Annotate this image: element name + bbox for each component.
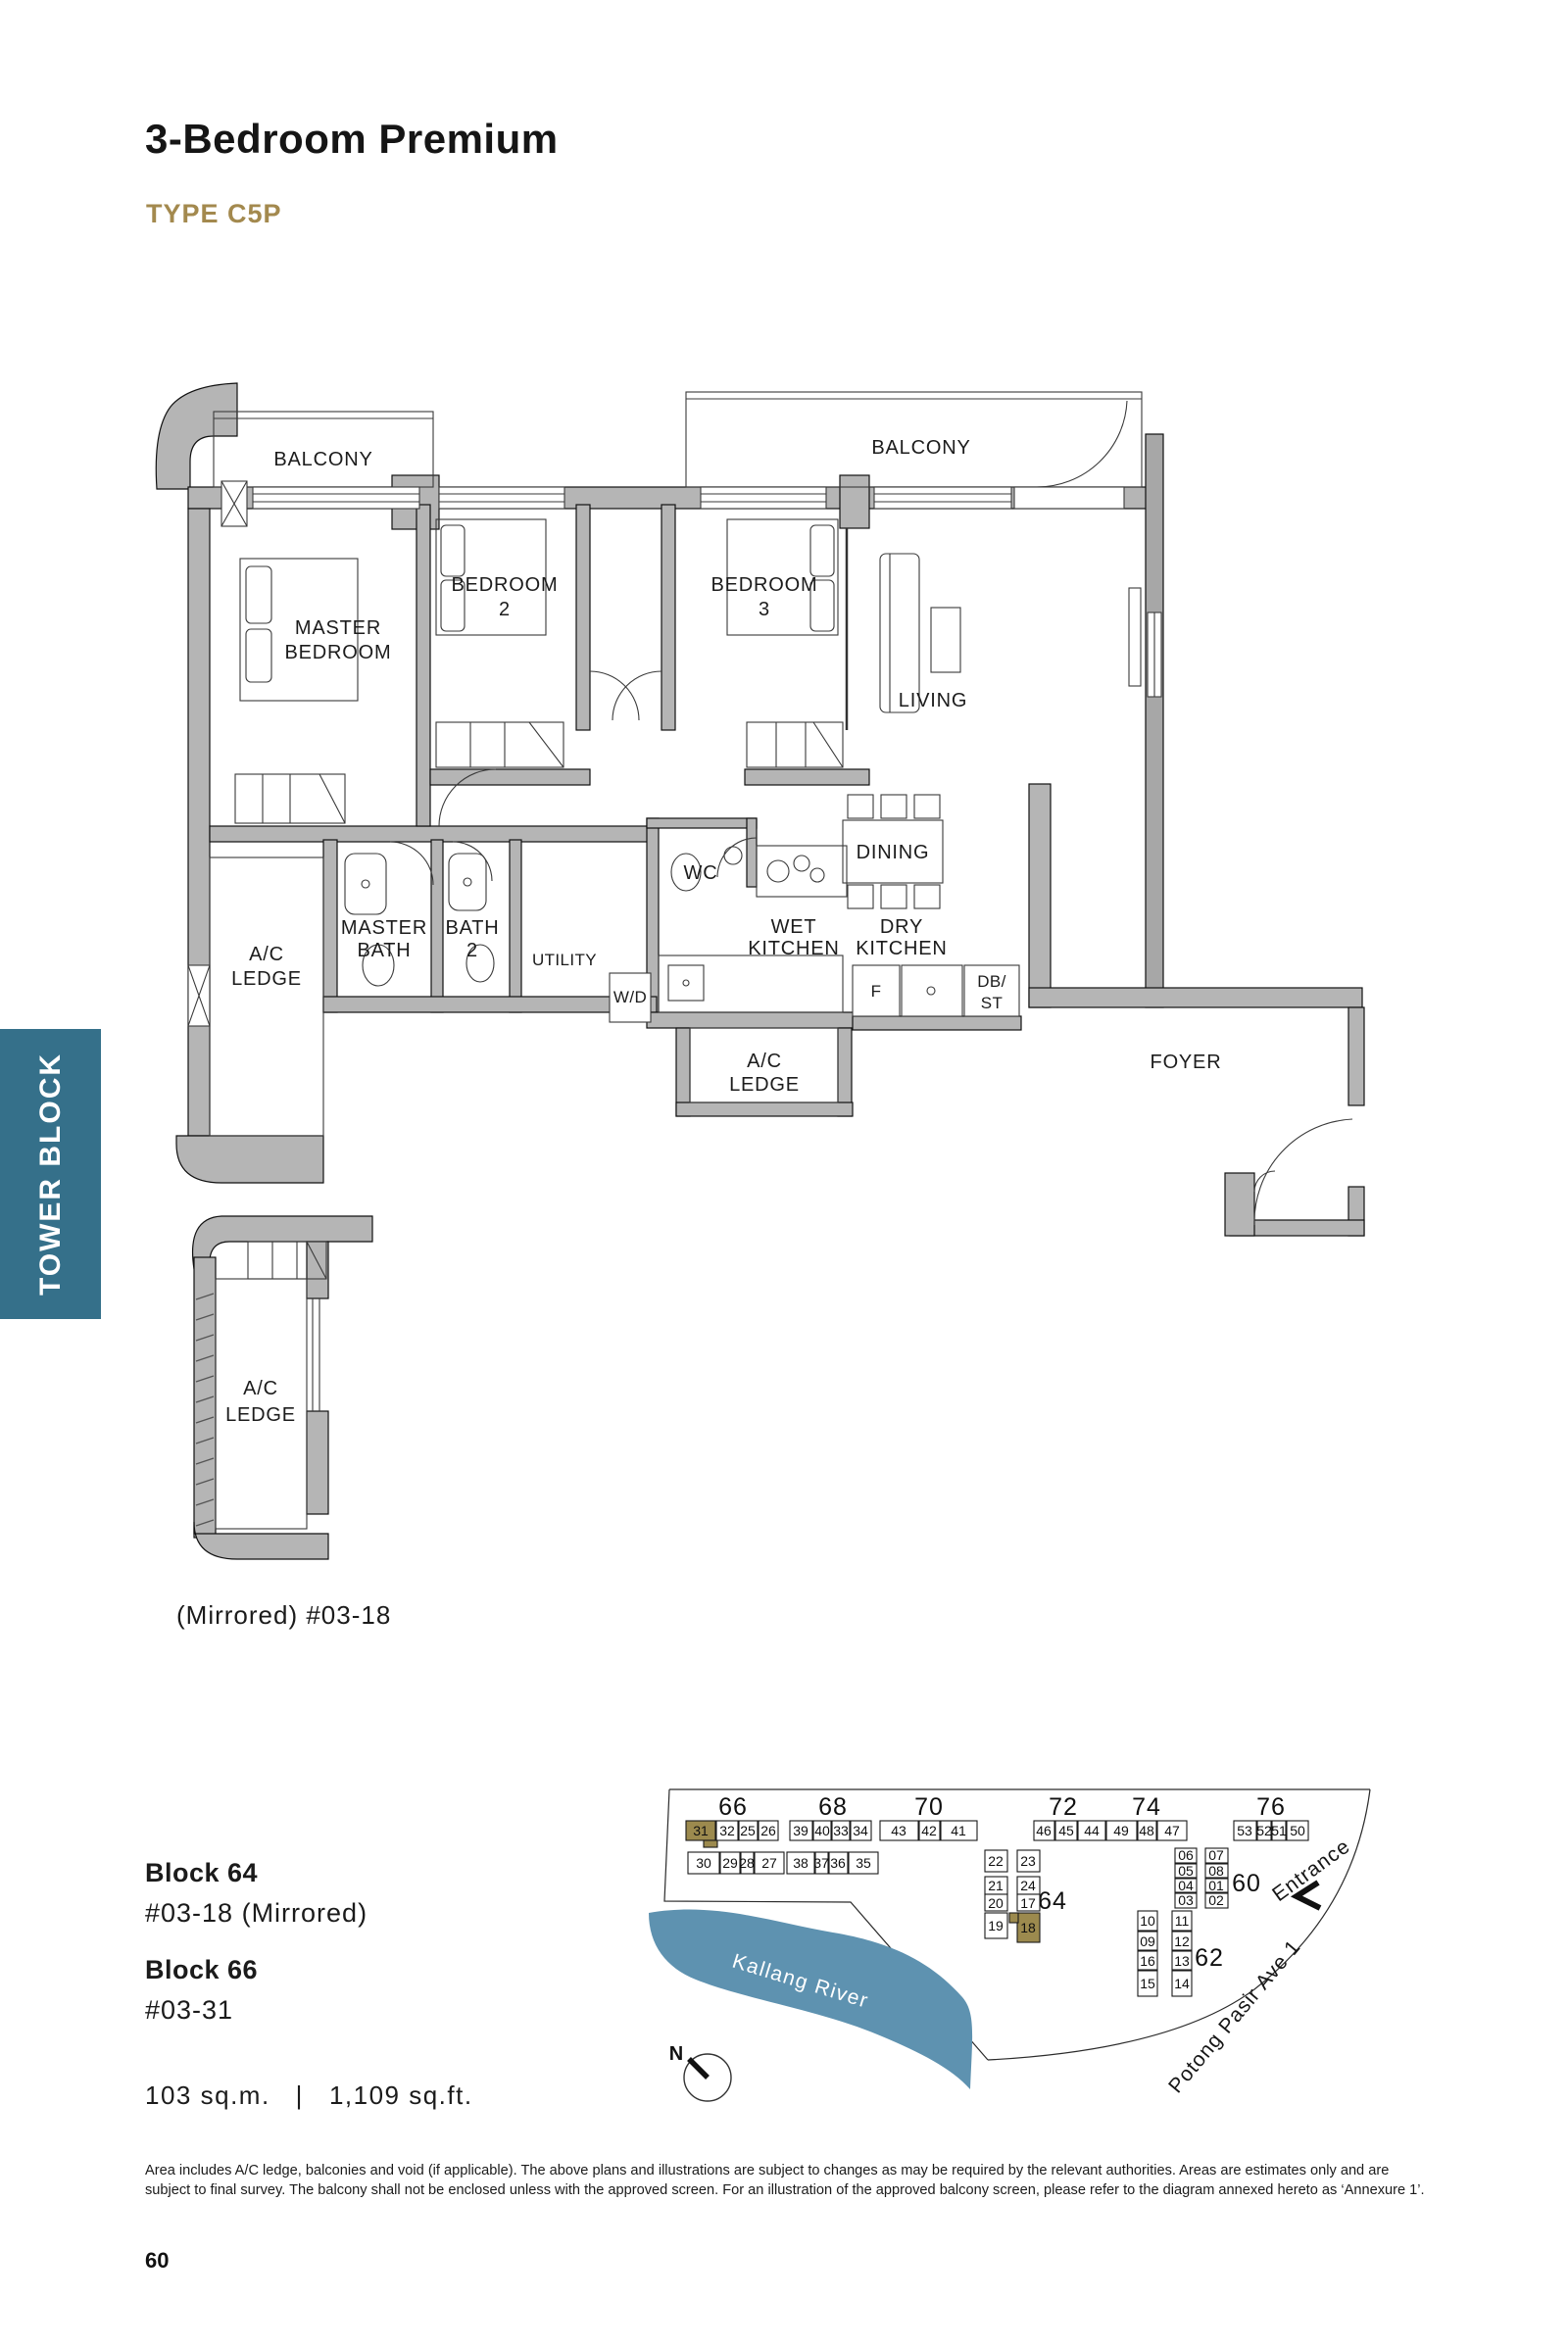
svg-text:30: 30 (696, 1855, 711, 1871)
svg-text:44: 44 (1084, 1823, 1100, 1838)
disclaimer-line-1: Area includes A/C ledge, balconies and v… (145, 2162, 1425, 2181)
svg-text:40: 40 (814, 1823, 830, 1838)
unit-cell: 24 (1017, 1877, 1040, 1894)
page-number: 60 (145, 2248, 169, 2274)
block-64-label: 64 (1038, 1887, 1067, 1915)
unit-cell: 05 (1175, 1863, 1197, 1879)
unit-cell: 22 (985, 1850, 1007, 1872)
svg-text:28: 28 (739, 1855, 755, 1871)
svg-text:16: 16 (1140, 1953, 1155, 1969)
svg-text:48: 48 (1139, 1823, 1154, 1838)
floor-plan: BALCONY BALCONY MASTER BEDROOM BEDROOM 2… (127, 377, 1382, 1641)
unit-cell: 34 (851, 1821, 871, 1840)
dry-kitchen-label: DRY (880, 916, 923, 938)
wd-label: W/D (613, 988, 647, 1006)
compass-north-label: N (669, 2043, 683, 2065)
unit-cell: 43 (880, 1821, 918, 1840)
svg-text:42: 42 (921, 1823, 937, 1838)
tower-block-tab: TOWER BLOCK (0, 1029, 101, 1319)
unit-cell: 52 (1256, 1821, 1272, 1840)
area-sqft: 1,109 sq.ft. (329, 2080, 473, 2110)
compass: N (669, 2043, 731, 2101)
svg-text:07: 07 (1208, 1847, 1224, 1863)
block-68-label: 68 (818, 1793, 848, 1821)
svg-text:05: 05 (1178, 1863, 1194, 1879)
site-plan: Kallang River Potong Pasir Ave 1 Entranc… (627, 1754, 1392, 2166)
detached-ac-ledge (193, 1216, 372, 1559)
unit-cell: 26 (759, 1821, 778, 1840)
living-label: LIVING (899, 690, 967, 711)
db-st-label: DB/ (977, 972, 1006, 991)
svg-text:BATH: BATH (357, 940, 411, 961)
svg-text:BEDROOM: BEDROOM (285, 642, 392, 663)
svg-text:33: 33 (833, 1823, 849, 1838)
svg-text:04: 04 (1178, 1878, 1194, 1893)
unit-cell: 44 (1078, 1821, 1105, 1840)
svg-text:27: 27 (761, 1855, 777, 1871)
unit-cell: 39 (790, 1821, 812, 1840)
unit-cell: 32 (716, 1821, 738, 1840)
svg-text:LEDGE: LEDGE (231, 968, 302, 990)
unit-cell: 29 (720, 1852, 740, 1874)
svg-text:32: 32 (719, 1823, 735, 1838)
unit-cell: 41 (941, 1821, 977, 1840)
block-64-unit-number: #03-18 (Mirrored) (145, 1898, 473, 1929)
svg-text:45: 45 (1058, 1823, 1074, 1838)
svg-text:13: 13 (1174, 1953, 1190, 1969)
block-76-label: 76 (1256, 1793, 1286, 1821)
mirrored-caption: (Mirrored) #03-18 (176, 1600, 391, 1630)
svg-text:03: 03 (1178, 1892, 1194, 1908)
unit-cell: 18 (1009, 1913, 1040, 1942)
unit-cell: 42 (919, 1821, 940, 1840)
block-70-label: 70 (914, 1793, 944, 1821)
unit-cell: 14 (1172, 1971, 1192, 1996)
foyer-label: FOYER (1151, 1052, 1222, 1073)
unit-cell: 04 (1175, 1878, 1197, 1893)
svg-text:10: 10 (1140, 1913, 1155, 1929)
master-bedroom-label: MASTER (295, 617, 381, 639)
block-66-heading: Block 66 (145, 1955, 473, 1985)
block-74-label: 74 (1132, 1793, 1161, 1821)
balcony-left-label: BALCONY (273, 449, 372, 470)
svg-text:12: 12 (1174, 1933, 1190, 1949)
dining-label: DINING (857, 842, 930, 863)
utility-label: UTILITY (532, 951, 597, 969)
page-title: 3-Bedroom Premium (145, 116, 559, 163)
unit-cell: 27 (755, 1852, 784, 1874)
unit-cell: 03 (1175, 1892, 1197, 1908)
unit-cell: 28 (739, 1852, 755, 1874)
wc-label: WC (684, 862, 718, 884)
room-labels: BALCONY BALCONY MASTER BEDROOM BEDROOM 2… (176, 437, 1221, 1630)
svg-text:41: 41 (951, 1823, 966, 1838)
area-divider: | (296, 2080, 304, 2110)
unit-cell: 36 (829, 1852, 848, 1874)
unit-cell: 02 (1205, 1892, 1228, 1908)
svg-text:ST: ST (981, 994, 1004, 1012)
unit-cell: 13 (1172, 1951, 1192, 1970)
unit-cell: 51 (1271, 1821, 1287, 1840)
unit-cell: 01 (1205, 1878, 1228, 1893)
block-66-label: 66 (718, 1793, 748, 1821)
unit-cell: 25 (739, 1821, 758, 1840)
svg-text:20: 20 (988, 1895, 1004, 1911)
svg-text:15: 15 (1140, 1976, 1155, 1991)
svg-text:53: 53 (1237, 1823, 1252, 1838)
svg-text:09: 09 (1140, 1933, 1155, 1949)
unit-cell: 16 (1138, 1951, 1157, 1970)
unit-cell: 35 (849, 1852, 878, 1874)
unit-cell: 21 (985, 1877, 1007, 1894)
svg-text:LEDGE: LEDGE (225, 1404, 296, 1426)
svg-text:37: 37 (813, 1855, 829, 1871)
unit-cell: 33 (832, 1821, 850, 1840)
unit-cell: 48 (1138, 1821, 1156, 1840)
unit-cell: 15 (1138, 1971, 1157, 1996)
ac-ledge-mid-label: A/C (747, 1051, 782, 1072)
svg-text:19: 19 (988, 1918, 1004, 1933)
unit-cell: 47 (1157, 1821, 1187, 1840)
bedroom2-label: BEDROOM (452, 574, 559, 596)
area-sqm: 103 sq.m. (145, 2080, 270, 2110)
area-info: 103 sq.m.|1,109 sq.ft. (145, 2080, 473, 2111)
unit-cell: 20 (985, 1894, 1007, 1911)
svg-text:35: 35 (856, 1855, 871, 1871)
svg-text:25: 25 (740, 1823, 756, 1838)
unit-cell: 53 (1234, 1821, 1256, 1840)
svg-text:KITCHEN: KITCHEN (748, 938, 839, 959)
unit-cell: 11 (1172, 1911, 1192, 1931)
svg-text:LEDGE: LEDGE (729, 1074, 800, 1096)
unit-cell: 08 (1205, 1863, 1228, 1879)
svg-text:36: 36 (830, 1855, 846, 1871)
unit-cell: 46 (1034, 1821, 1054, 1840)
kallang-river: Kallang River (649, 1910, 972, 2089)
balcony-right-label: BALCONY (871, 437, 970, 459)
unit-cell: 50 (1287, 1821, 1308, 1840)
unit-cell: 45 (1055, 1821, 1077, 1840)
unit-cell: 07 (1205, 1847, 1228, 1863)
disclaimer: Area includes A/C ledge, balconies and v… (145, 2162, 1425, 2200)
disclaimer-line-2: subject to final survey. The balcony sha… (145, 2181, 1425, 2201)
block-66-unit-number: #03-31 (145, 1995, 473, 2026)
svg-text:14: 14 (1174, 1976, 1190, 1991)
svg-text:11: 11 (1175, 1913, 1190, 1929)
svg-text:3: 3 (759, 599, 770, 620)
unit-info: Block 64 #03-18 (Mirrored) Block 66 #03-… (145, 1858, 473, 2111)
unit-cell: 30 (688, 1852, 719, 1874)
block-62-label: 62 (1195, 1944, 1224, 1972)
svg-text:34: 34 (853, 1823, 868, 1838)
unit-cell: 17 (1017, 1894, 1040, 1911)
svg-text:22: 22 (988, 1853, 1004, 1869)
ac-ledge-low-label: A/C (243, 1378, 278, 1399)
svg-text:08: 08 (1208, 1863, 1224, 1879)
unit-cell: 19 (985, 1913, 1007, 1938)
svg-text:24: 24 (1020, 1878, 1036, 1893)
svg-text:18: 18 (1020, 1920, 1036, 1935)
master-bath-label: MASTER (341, 917, 427, 939)
block-64-heading: Block 64 (145, 1858, 473, 1888)
tower-block-tab-label: TOWER BLOCK (34, 1052, 68, 1296)
unit-cell: 12 (1172, 1932, 1192, 1950)
brochure-page: 3-Bedroom Premium TYPE C5P TOWER BLOCK (0, 0, 1568, 2349)
svg-text:51: 51 (1271, 1823, 1287, 1838)
bedroom3-label: BEDROOM (711, 574, 818, 596)
svg-text:50: 50 (1290, 1823, 1305, 1838)
unit-cell: 09 (1138, 1932, 1157, 1950)
svg-text:38: 38 (793, 1855, 808, 1871)
unit-cell: 23 (1017, 1850, 1040, 1872)
svg-text:49: 49 (1113, 1823, 1129, 1838)
unit-cell: 49 (1106, 1821, 1137, 1840)
bath2-label: BATH (445, 917, 499, 939)
svg-text:39: 39 (793, 1823, 808, 1838)
svg-text:29: 29 (722, 1855, 738, 1871)
svg-text:31: 31 (693, 1823, 709, 1838)
svg-text:2: 2 (499, 599, 511, 620)
svg-text:52: 52 (1256, 1823, 1272, 1838)
unit-cell: 31 (686, 1821, 717, 1847)
fridge-label: F (871, 982, 882, 1001)
compass-needle-icon (689, 2059, 708, 2078)
block-72-label: 72 (1049, 1793, 1078, 1821)
unit-cell: 37 (813, 1852, 829, 1874)
svg-text:KITCHEN: KITCHEN (856, 938, 947, 959)
svg-text:17: 17 (1020, 1895, 1036, 1911)
svg-text:43: 43 (891, 1823, 906, 1838)
unit-cell: 38 (787, 1852, 814, 1874)
block-60-label: 60 (1232, 1870, 1261, 1897)
entrance-label: Entrance (1268, 1835, 1354, 1906)
wet-kitchen-label: WET (771, 916, 817, 938)
unit-cell: 10 (1138, 1911, 1157, 1931)
svg-text:2: 2 (466, 940, 478, 961)
svg-text:47: 47 (1164, 1823, 1180, 1838)
svg-text:23: 23 (1020, 1853, 1036, 1869)
svg-text:46: 46 (1036, 1823, 1052, 1838)
svg-text:06: 06 (1178, 1847, 1194, 1863)
svg-text:02: 02 (1208, 1892, 1224, 1908)
svg-text:21: 21 (988, 1878, 1004, 1893)
ac-ledge-left-label: A/C (249, 944, 284, 965)
svg-text:26: 26 (760, 1823, 776, 1838)
svg-text:01: 01 (1208, 1878, 1224, 1893)
unit-cell: 40 (813, 1821, 831, 1840)
unit-cell: 06 (1175, 1847, 1197, 1863)
unit-type-label: TYPE C5P (146, 199, 282, 229)
